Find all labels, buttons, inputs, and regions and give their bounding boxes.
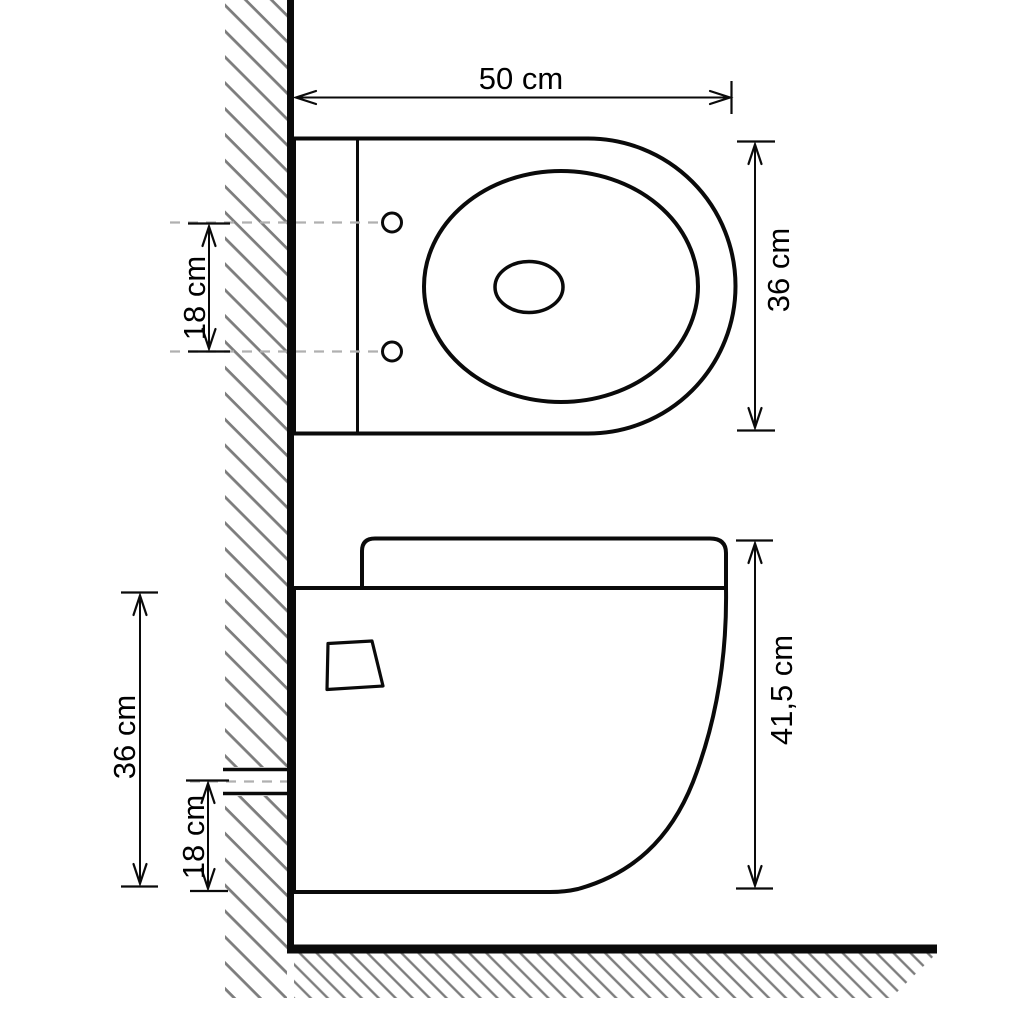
floor-line	[287, 945, 937, 954]
toilet-dimension-diagram: 50 cm 36 cm 18 cm 41,5 cm 36 cm	[0, 0, 1024, 1024]
diagram-canvas: 50 cm 36 cm 18 cm 41,5 cm 36 cm	[0, 0, 1024, 1024]
dim-label-total-height: 41,5 cm	[764, 635, 799, 745]
toilet-lid-side	[362, 539, 726, 589]
bolt-hole-top	[383, 213, 402, 232]
wall-hatch	[225, 0, 287, 998]
dim-label-outlet-height: 18 cm	[176, 795, 211, 879]
bolt-hole-bottom	[383, 342, 402, 361]
dim-label-mount-height: 36 cm	[107, 695, 142, 779]
floor-hatch	[294, 953, 937, 998]
flush-detail	[327, 641, 383, 690]
wall-face-line	[287, 0, 294, 953]
dim-label-top-depth: 36 cm	[761, 228, 796, 312]
drain-hole	[495, 262, 563, 313]
dim-label-top-width: 50 cm	[479, 61, 563, 96]
dim-label-bolt-spacing: 18 cm	[177, 256, 212, 340]
